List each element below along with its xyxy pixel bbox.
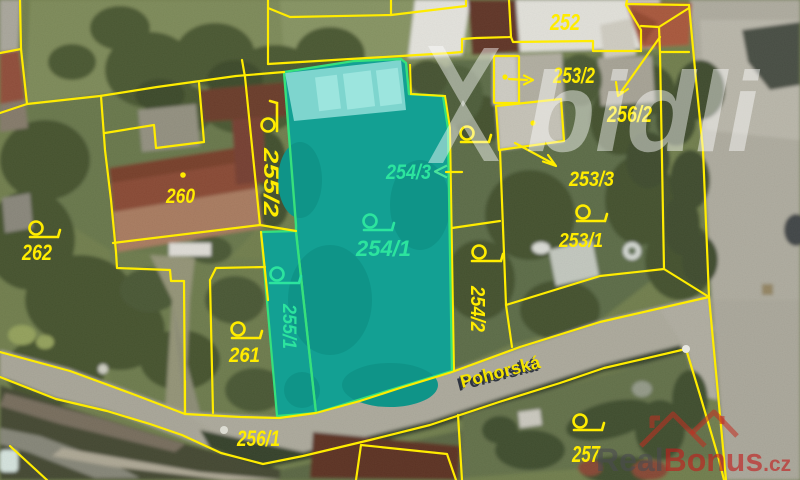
svg-text:256/1: 256/1 <box>236 426 280 451</box>
svg-text:254/1: 254/1 <box>355 236 411 261</box>
svg-text:254/3: 254/3 <box>385 161 431 184</box>
svg-text:260: 260 <box>165 185 195 208</box>
svg-text:262: 262 <box>21 240 52 265</box>
svg-text:253/1: 253/1 <box>558 230 603 252</box>
svg-text:bidli: bidli <box>526 49 761 175</box>
svg-text:RealBonus.cz: RealBonus.cz <box>596 442 791 478</box>
svg-text:255/1: 255/1 <box>278 303 300 349</box>
svg-text:261: 261 <box>228 344 260 367</box>
svg-text:254/2: 254/2 <box>466 285 488 332</box>
svg-text:252: 252 <box>549 9 580 35</box>
svg-text:255/2: 255/2 <box>259 147 282 218</box>
